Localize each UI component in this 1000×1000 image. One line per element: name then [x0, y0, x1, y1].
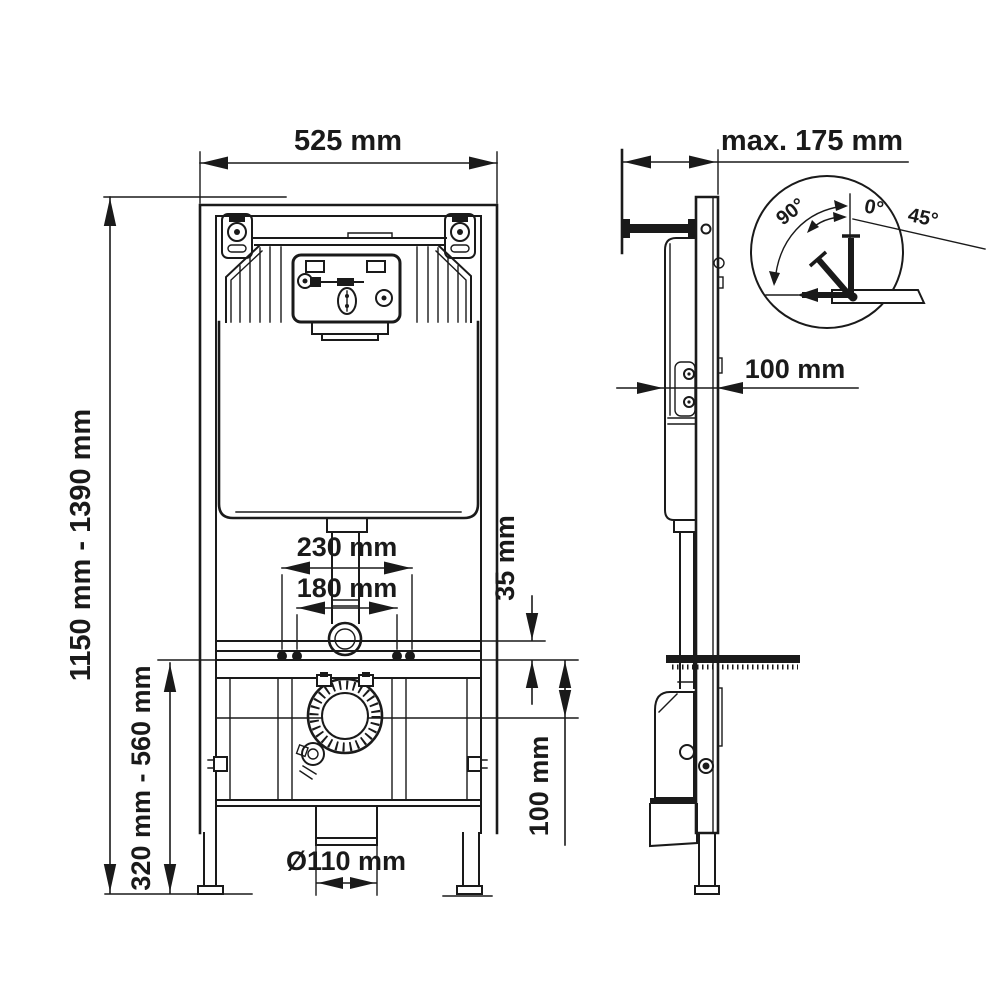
dim-rail-offset-35-label: 35 mm [490, 515, 520, 601]
side-bolt-right [468, 757, 487, 771]
pivot-point [849, 293, 858, 302]
dim-fixing-spacing-180: 180 mm [297, 573, 398, 649]
dim-fixing-spacing-180-label: 180 mm [297, 573, 398, 603]
dim-outlet-diameter-label: Ø110 mm [286, 846, 406, 876]
access-panel [293, 255, 400, 340]
dim-frame-width: 525 mm [200, 125, 497, 203]
installation-frame-drawing: 525 mm 1150 mm - 1390 mm 320 mm - 560 mm… [0, 0, 1000, 1000]
fixing-point [405, 651, 415, 661]
bottom-rail [216, 800, 481, 806]
dim-frame-height: 1150 mm - 1390 mm [65, 197, 286, 893]
cistern-tank [219, 322, 478, 518]
dim-frame-height-label: 1150 mm - 1390 mm [65, 409, 97, 681]
drain-bend [297, 672, 382, 779]
angle-0-label: 0° [863, 196, 886, 221]
wall-bracket-left [222, 214, 252, 258]
fixing-point [292, 651, 302, 661]
cistern-top [226, 233, 471, 322]
dim-fixing-spacing-230-label: 230 mm [297, 532, 398, 562]
dim-outlet-diameter: Ø110 mm [286, 846, 406, 889]
angle-detail: 90° 0° 45° [751, 176, 985, 328]
side-cistern-profile [665, 238, 696, 688]
dim-lower-frame-height: 320 mm - 560 mm [126, 663, 176, 893]
fixing-point [392, 651, 402, 661]
dim-frame-width-label: 525 mm [294, 125, 402, 157]
dim-depth: max. 175 mm [622, 125, 908, 194]
front-view: 525 mm 1150 mm - 1390 mm 320 mm - 560 mm… [65, 125, 578, 896]
dim-lower-frame-height-label: 320 mm - 560 mm [126, 665, 156, 890]
wall-bracket-right [445, 214, 475, 258]
bracket-hole [702, 225, 711, 234]
side-drain-elbow [650, 692, 713, 846]
angle-45-label: 45° [906, 204, 940, 232]
technical-drawing-page: 525 mm 1150 mm - 1390 mm 320 mm - 560 mm… [0, 0, 1000, 1000]
side-bolt-left [208, 757, 227, 771]
dim-depth-label: max. 175 mm [721, 125, 903, 157]
floor-line [105, 894, 492, 896]
dim-drain-offset-100: 100 mm [524, 661, 571, 845]
side-frame-rail [696, 197, 724, 833]
fixing-point [277, 651, 287, 661]
side-view: max. 175 mm 100 mm [617, 125, 908, 894]
leg-left [198, 833, 223, 894]
pan-mounting-plate [666, 655, 800, 667]
dim-wall-offset-label: 100 mm [745, 354, 846, 384]
leg-right [457, 833, 482, 894]
dim-drain-offset-100-label: 100 mm [524, 736, 554, 837]
angle-90-label: 90° [772, 194, 809, 230]
dim-wall-offset: 100 mm [617, 354, 858, 394]
side-leg [695, 833, 719, 894]
wall-bracket-rod [623, 219, 696, 238]
